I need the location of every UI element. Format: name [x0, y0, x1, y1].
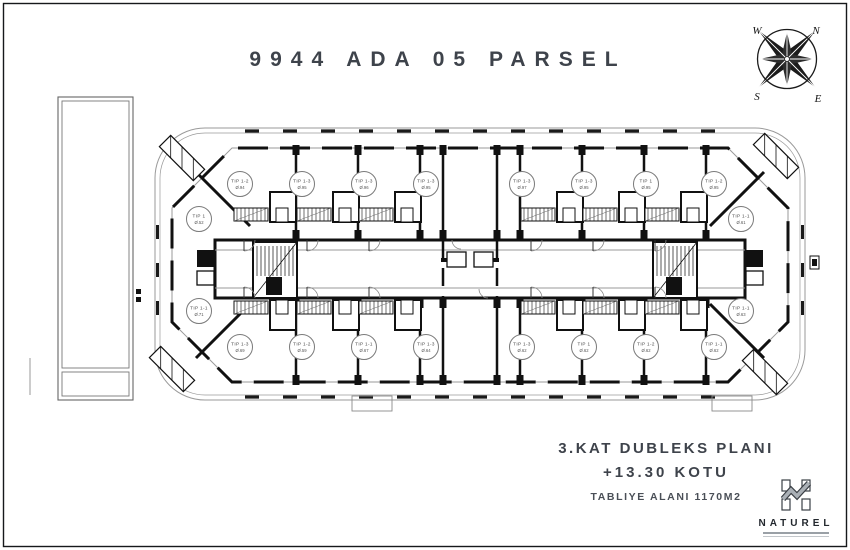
unit-label-circle: TIP 1Ø.95 — [634, 172, 659, 197]
unit-label-circle: TIP 1-3Ø.95 — [414, 172, 439, 197]
compass-letter-n: N — [811, 25, 820, 37]
svg-text:Ø.63: Ø.63 — [736, 312, 746, 317]
svg-text:TIP 1-3: TIP 1-3 — [231, 342, 249, 347]
svg-text:TIP 1-3: TIP 1-3 — [417, 342, 435, 347]
svg-text:TIP 1-3: TIP 1-3 — [513, 179, 531, 184]
compass-letter-e: E — [814, 93, 822, 105]
svg-text:TIP 1-2: TIP 1-2 — [231, 179, 249, 184]
svg-text:Ø.69: Ø.69 — [235, 348, 245, 353]
svg-text:Ø.67: Ø.67 — [359, 348, 369, 353]
svg-text:TIP 1-3: TIP 1-3 — [513, 342, 531, 347]
svg-text:Ø.62: Ø.62 — [641, 348, 651, 353]
page-title: 9944 ADA 05 PARSEL — [0, 48, 850, 72]
floor-plan-caption: 3.KAT DUBLEKS PLANI — [530, 440, 802, 457]
compass-letter-w: W — [752, 25, 762, 37]
unit-label-circle: TIP 1-2Ø.59 — [290, 335, 315, 360]
svg-text:Ø.95: Ø.95 — [709, 185, 719, 190]
unit-label-circle: TIP 1-2Ø.94 — [228, 172, 253, 197]
svg-text:Ø.97: Ø.97 — [517, 185, 527, 190]
svg-text:Ø.95: Ø.95 — [579, 185, 589, 190]
svg-text:TIP 1: TIP 1 — [640, 179, 653, 184]
svg-text:TIP 1-2: TIP 1-2 — [637, 342, 655, 347]
svg-text:Ø.96: Ø.96 — [359, 185, 369, 190]
svg-text:TIP 1-3: TIP 1-3 — [417, 179, 435, 184]
unit-label-circle: TIP 1-3Ø.64 — [414, 335, 439, 360]
naturel-logo: NATUREL — [752, 479, 840, 537]
svg-text:Ø.71: Ø.71 — [194, 312, 204, 317]
svg-text:TIP 1-1: TIP 1-1 — [732, 214, 750, 219]
svg-text:Ø.95: Ø.95 — [421, 185, 431, 190]
svg-text:Ø.61: Ø.61 — [736, 220, 746, 225]
unit-label-circle: TIP 1Ø.62 — [572, 335, 597, 360]
left-parcel-block — [30, 97, 133, 400]
svg-text:Ø.62: Ø.62 — [579, 348, 589, 353]
svg-text:TIP 1-1: TIP 1-1 — [190, 306, 208, 311]
svg-text:Ø.52: Ø.52 — [194, 220, 204, 225]
unit-label-circle: TIP 1-3Ø.96 — [352, 172, 377, 197]
unit-label-circle: TIP 1-1Ø.67 — [352, 335, 377, 360]
unit-label-circle: TIP 1-2Ø.95 — [702, 172, 727, 197]
svg-text:Ø.59: Ø.59 — [297, 348, 307, 353]
drawing-sheet: TIP 1-2Ø.94TIP 1-3Ø.95TIP 1-3Ø.96TIP 1-3… — [0, 0, 850, 550]
unit-label-circle: TIP 1Ø.52 — [187, 207, 212, 232]
svg-text:TIP 1-3: TIP 1-3 — [355, 179, 373, 184]
svg-text:TIP 1-3: TIP 1-3 — [575, 179, 593, 184]
unit-label-circle: TIP 1-3Ø.95 — [572, 172, 597, 197]
svg-text:Ø.62: Ø.62 — [709, 348, 719, 353]
logo-mark — [781, 479, 811, 511]
svg-text:TIP 1: TIP 1 — [193, 214, 206, 219]
svg-text:Ø.95: Ø.95 — [297, 185, 307, 190]
stair-core-left — [253, 242, 297, 298]
svg-text:TIP 1-1: TIP 1-1 — [732, 306, 750, 311]
svg-text:TIP 1-1: TIP 1-1 — [705, 342, 723, 347]
unit-label-circle: TIP 1-1Ø.71 — [187, 299, 212, 324]
svg-text:TIP 1: TIP 1 — [578, 342, 591, 347]
svg-text:Ø.95: Ø.95 — [641, 185, 651, 190]
svg-text:TIP 1-2: TIP 1-2 — [293, 342, 311, 347]
svg-text:TIP 1-3: TIP 1-3 — [293, 179, 311, 184]
logo-name: NATUREL — [752, 518, 840, 529]
unit-label-circle: TIP 1-3Ø.69 — [228, 335, 253, 360]
unit-label-circle: TIP 1-3Ø.62 — [510, 335, 535, 360]
unit-label-circle: TIP 1-3Ø.97 — [510, 172, 535, 197]
unit-label-circle: TIP 1-1Ø.61 — [729, 207, 754, 232]
unit-label-circle: TIP 1-3Ø.95 — [290, 172, 315, 197]
svg-text:Ø.62: Ø.62 — [517, 348, 527, 353]
svg-text:TIP 1-2: TIP 1-2 — [705, 179, 723, 184]
logo-tagline — [763, 532, 829, 537]
unit-label-circle: TIP 1-1Ø.63 — [729, 299, 754, 324]
svg-text:TIP 1-1: TIP 1-1 — [355, 342, 373, 347]
compass-letter-s: S — [754, 91, 760, 103]
svg-text:Ø.94: Ø.94 — [235, 185, 245, 190]
unit-label-circle: TIP 1-1Ø.62 — [702, 335, 727, 360]
svg-text:Ø.64: Ø.64 — [421, 348, 431, 353]
unit-label-circle: TIP 1-2Ø.62 — [634, 335, 659, 360]
